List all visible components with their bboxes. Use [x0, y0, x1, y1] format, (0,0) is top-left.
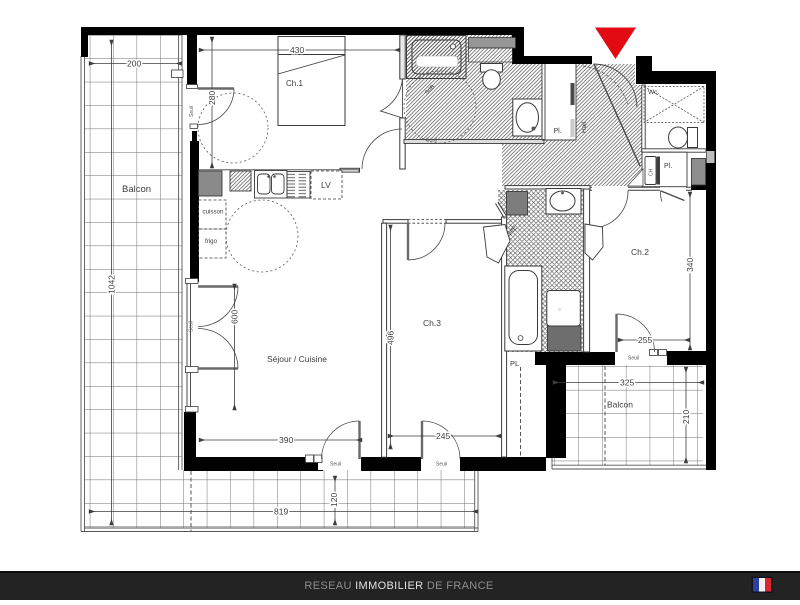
- svg-text:Balcon: Balcon: [122, 184, 151, 195]
- svg-text:Hall: Hall: [581, 121, 588, 133]
- svg-text:Pl.: Pl.: [664, 163, 672, 170]
- svg-text:Seuil: Seuil: [628, 356, 639, 362]
- svg-text:Ch.3: Ch.3: [423, 318, 441, 328]
- svg-text:Seuil: Seuil: [189, 106, 195, 117]
- svg-text:Ch.1: Ch.1: [286, 79, 303, 88]
- svg-text:200: 200: [127, 59, 141, 69]
- svg-text:1042: 1042: [107, 275, 117, 294]
- svg-text:430: 430: [290, 45, 304, 55]
- svg-text:245: 245: [436, 431, 450, 441]
- svg-text:496: 496: [386, 331, 396, 345]
- svg-text:○: ○: [558, 307, 561, 313]
- svg-text:Seuil: Seuil: [330, 462, 341, 468]
- svg-text:325: 325: [620, 378, 634, 388]
- svg-text:Balcon: Balcon: [607, 400, 633, 410]
- svg-text:Séjour / Cuisine: Séjour / Cuisine: [267, 354, 327, 364]
- svg-text:Pl.: Pl.: [554, 128, 562, 135]
- svg-text:120: 120: [329, 493, 339, 507]
- svg-text:340: 340: [685, 258, 695, 272]
- svg-text:255: 255: [638, 335, 652, 345]
- svg-text:cuisson: cuisson: [203, 209, 225, 216]
- svg-text:frigo: frigo: [205, 238, 218, 245]
- svg-text:280: 280: [207, 91, 217, 105]
- svg-text:819: 819: [274, 507, 288, 517]
- svg-text:CH: CH: [649, 168, 655, 176]
- svg-text:Ch.2: Ch.2: [631, 247, 649, 257]
- svg-text:210: 210: [681, 410, 691, 424]
- svg-text:PL: PL: [510, 359, 519, 368]
- svg-text:LV: LV: [321, 180, 331, 190]
- svg-text:Seuil: Seuil: [189, 321, 195, 332]
- svg-text:Seuil: Seuil: [436, 462, 447, 468]
- svg-text:RESEAU IMMOBILIER DE FRANCE: RESEAU IMMOBILIER DE FRANCE: [304, 580, 493, 592]
- svg-text:Seuil: Seuil: [426, 138, 437, 144]
- svg-text:600: 600: [230, 310, 240, 324]
- svg-text:390: 390: [279, 435, 293, 445]
- svg-text:Wc.: Wc.: [648, 89, 659, 96]
